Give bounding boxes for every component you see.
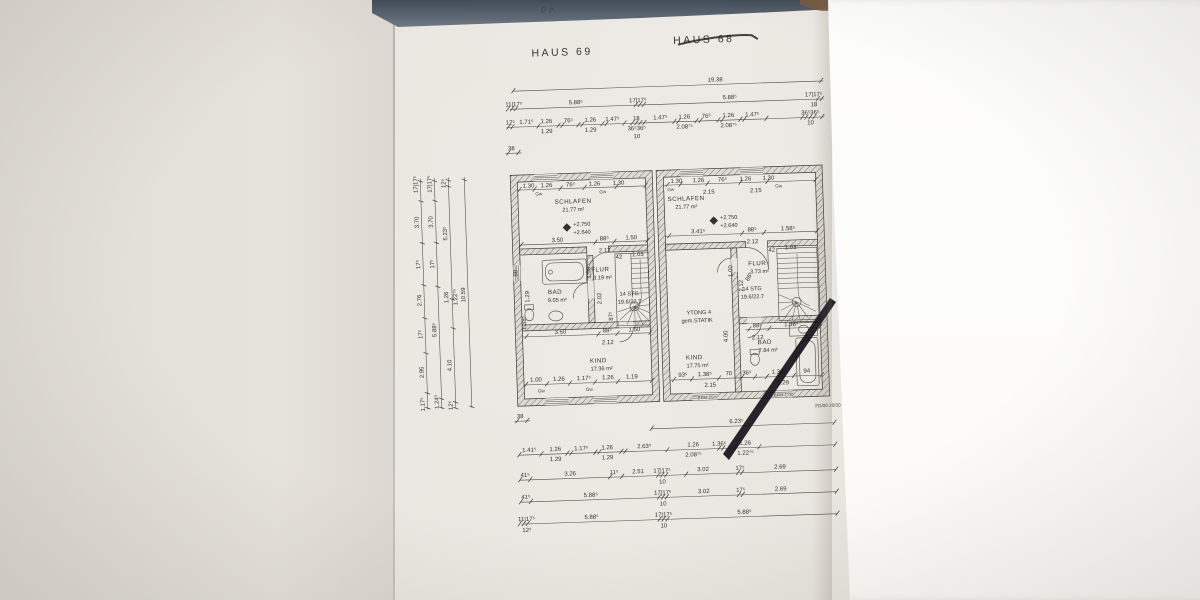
unit-left-stair (615, 253, 650, 326)
note-statik: gem.STATIK (681, 318, 713, 325)
room-name: SCHLAFEN (667, 195, 704, 203)
unit-left-interior: 1.30 1.26 76⁵ 1.26 1.30 Gw Gw SCHLAFEN 2… (510, 179, 654, 394)
dim-label: 36⁵ (742, 369, 752, 376)
room-area: 9.05 m² (548, 298, 567, 305)
window-gw-mark: Gw (599, 189, 607, 194)
dim-label: 2.12 (739, 279, 745, 292)
level-lower: +2.640 (573, 230, 590, 237)
dim-label: 38 (517, 414, 525, 420)
dim-label: 1.38⁵ (784, 321, 799, 328)
dim-label: 1.26 (601, 445, 614, 451)
dim-label: 1.26 (553, 377, 566, 383)
dim-label: 3.70 (428, 215, 434, 228)
dim-label: 87⁵ (608, 311, 615, 321)
dim-label: 3.70 (414, 216, 420, 229)
floorplan-photo: HAUS 69 HAUS 68 19.38 11|17⁵ 5.88⁵ 17|17… (0, 0, 1200, 600)
window-gw-mark: Gw (538, 388, 546, 393)
dim-label: 1.26 (584, 117, 597, 123)
dim-label: 5.88⁵ (723, 94, 738, 101)
room-name: FLUR (748, 260, 766, 268)
dim-label: 1.38⁵ (698, 371, 713, 378)
dim-label: 4.10 (447, 359, 453, 372)
dim-label: 1.30 (671, 179, 684, 185)
dim-label: 1.22⁷⁵ (452, 288, 460, 305)
dim-label: 1.50 (628, 327, 641, 333)
dim-label: 11⁵ (610, 469, 619, 476)
dim-label: 1.30 (523, 184, 536, 190)
dim-label: 10 (660, 523, 668, 529)
dim-label: 93⁵ (678, 372, 688, 379)
note-ytong: YTONG 4 (687, 310, 712, 317)
dim-label: 1.30 (762, 176, 775, 182)
dim-label: 10.59 (461, 287, 468, 303)
dim-label: 2.12 (599, 248, 612, 254)
dim-label: 41⁵ (520, 472, 530, 479)
dim-label: 12⁵ (506, 119, 516, 126)
title-haus-69: HAUS 69 (531, 46, 593, 60)
dim-label: 2.08⁷⁵ (720, 122, 737, 130)
dim-label: 2.95 (419, 366, 425, 379)
dim-label: 17⁵ (417, 329, 424, 339)
dim-label: 70 (725, 371, 733, 377)
dim-label: 11|17⁵ (505, 101, 523, 109)
room-name: KIND (590, 357, 607, 365)
dim-label: 17|17⁵ (653, 467, 671, 475)
dim-label: 1.29 (525, 290, 531, 303)
room-name: BAD (548, 289, 562, 296)
dim-label: 17|17⁵ (412, 175, 420, 193)
dim-label: 3.50 (551, 238, 564, 244)
dim-label: 76⁵ (564, 117, 574, 124)
stair-label: 14 STG (742, 286, 761, 293)
level-mark: +2.750 +2.640 (563, 222, 591, 237)
dim-label: 1.26 (740, 176, 753, 182)
dim-label: 17⁵ (415, 259, 422, 269)
bathtub-drain (548, 270, 552, 274)
dim-label: 2.76 (417, 294, 423, 307)
dim-label: 10 (659, 479, 667, 485)
window-gw-mark: Gw (667, 187, 675, 192)
room-area: 3.19 m² (593, 275, 612, 282)
dim-label: 1.29 (777, 380, 790, 386)
dim-label: 17|17⁵ (655, 511, 673, 519)
dim-label: 3.02 (697, 467, 710, 473)
dim-label: 10 (660, 501, 668, 507)
dim-label: 1.00 (728, 264, 734, 277)
dim-label: 38 (508, 146, 516, 152)
dim-label: 1.47⁵ (745, 111, 760, 118)
dim-label: 12⁵ (448, 400, 455, 410)
dim-label: 2.15 (703, 190, 716, 196)
dim-label: 2.02 (597, 292, 603, 305)
dim-label: 36⁵36⁵ (627, 125, 646, 133)
page-edge-shadow (812, 0, 832, 600)
dim-label: 19.38 (708, 77, 724, 84)
dim-label: 1.29 (585, 127, 598, 133)
room-area: 17.75 m² (686, 363, 708, 370)
dim-label: 2.08⁷⁵ (685, 451, 702, 459)
dim-label: 17|17⁵ (654, 489, 672, 497)
room-area: 21.77 m² (675, 204, 697, 211)
dim-label: 2.69 (775, 486, 788, 492)
left-dimension-chains: 17|17⁵ 3.70 17⁵ 2.76 17⁵ 2.95 1.17⁵ 17|1… (412, 174, 474, 412)
dim-label: 2.15 (704, 383, 717, 389)
dim-label: 1.26 (540, 119, 553, 125)
dim-label: 76⁵ (718, 176, 728, 183)
dim-label: 1.29 (541, 129, 554, 135)
level-upper: +2.750 (573, 222, 590, 229)
dim-label: 1.19 (626, 374, 639, 380)
dim-label: 1.17⁵ (574, 445, 589, 452)
level-lower: +2.640 (720, 223, 737, 230)
top-dimension-chains: 19.38 11|17⁵ 5.88⁵ 17|17⁵ 5.88⁵ 17|17⁵ 1… (503, 74, 825, 156)
level-mark: +2.750 +2.640 (710, 215, 738, 230)
dim-label: 1.22⁷⁵ (737, 449, 754, 457)
dim-label: 1.26 (589, 181, 602, 187)
dim-label: 17⁵ (735, 465, 745, 472)
window-gw-mark: Gw (535, 191, 543, 196)
dim-label: 12⁵ (440, 178, 447, 188)
dim-label: 2.15 (750, 188, 763, 194)
dim-label: 4.00 (723, 330, 729, 343)
dim-label: 1.30 (613, 181, 626, 187)
unit-right-fixtures (749, 322, 819, 387)
dim-label: 3.02 (698, 489, 711, 495)
dim-label: 41⁵ (521, 494, 531, 501)
dim-label: 1.38⁵ (772, 368, 787, 375)
dim-label: 76⁵ (702, 113, 712, 120)
dim-label: 1.26 (678, 114, 691, 120)
dim-label: 17|17⁵ (426, 175, 434, 193)
dim-label: 42 (768, 248, 776, 254)
dim-label: 2.63⁵ (637, 443, 652, 450)
dim-label: 17⁵ (736, 487, 746, 494)
dim-label: 1.26 (444, 291, 450, 304)
dim-label: 1.58⁵ (781, 225, 796, 232)
plan-titles: HAUS 69 HAUS 68 (531, 32, 758, 60)
dim-label: 1.26 (739, 440, 752, 446)
dim-label: 1.47⁵ (605, 116, 620, 123)
room-name: FLUR (591, 266, 609, 274)
dim-label: 1.26 (602, 375, 615, 381)
dim-label: 6.23⁵ (729, 418, 744, 425)
dim-label: 2.12 (602, 340, 615, 346)
dim-label: 1.26 (541, 183, 554, 189)
toilet (524, 305, 534, 321)
dim-label: 76⁵ (566, 181, 576, 188)
dim-label: 11|17⁵ (518, 516, 536, 524)
window-gw-mark: Gw (586, 387, 594, 392)
dim-label: 17⁵ (429, 259, 436, 269)
dim-label: 1.17⁵ (577, 375, 592, 382)
dim-label: 3.50 (554, 330, 567, 336)
room-area: 17.36 m² (591, 366, 613, 373)
note-brh: BRH 1.00 (774, 392, 795, 398)
bottom-dimension-chains: 38 6.23⁵ 1.41⁵ 1.26 1.17⁵ 1.26 2.63⁵ 1.2… (514, 404, 840, 535)
level-upper: +2.750 (720, 215, 737, 222)
dim-label: 1.50 (625, 235, 638, 241)
dim-label: 18 (633, 116, 641, 122)
dim-label: 1.71⁵ (519, 119, 534, 126)
dim-label: 42 (616, 255, 624, 261)
dim-label: 1.17⁵ (419, 397, 426, 412)
dim-label: 2.69 (774, 464, 787, 470)
dim-label: 2.08⁷⁵ (676, 123, 693, 131)
dim-label: 5.88⁵ (584, 514, 599, 521)
dim-label: 88⁵ (747, 226, 757, 233)
dim-label: 94 (803, 368, 811, 374)
dim-label: 5.88⁵ (584, 492, 599, 499)
dim-label: 1.24⁵ (433, 394, 440, 409)
dim-label: 5.23⁵ (442, 226, 449, 241)
dim-label: 3.26 (564, 471, 577, 477)
floorplan-drawing: HAUS 69 HAUS 68 19.38 11|17⁵ 5.88⁵ 17|17… (383, 18, 871, 573)
dim-label: 1.26 (549, 447, 562, 453)
dim-label: 1.47⁵ (653, 114, 668, 121)
dim-label: 1.26 (687, 442, 700, 448)
dim-label: 5.88⁵ (569, 99, 584, 106)
note-brh: BRH 25 (698, 395, 715, 401)
room-name: SCHLAFEN (554, 198, 591, 206)
dim-label: 1.29 (602, 455, 615, 461)
dim-label: 3.41⁵ (691, 228, 706, 235)
dim-label: 1.36⁵ (712, 440, 727, 447)
sink (549, 311, 563, 321)
dim-label: 2.12 (747, 239, 760, 245)
dim-label: 1.41⁵ (522, 447, 537, 454)
dim-label: 17|17⁵ (629, 97, 647, 105)
dim-label: 1.26 (693, 178, 706, 184)
stair-label: 14 STG (619, 291, 638, 298)
stair-label: 19.6/22.7 (741, 294, 765, 301)
dim-label: 10 (634, 134, 642, 140)
dim-label: 88⁵ (603, 327, 613, 334)
dim-label: 5.88⁵ (737, 509, 752, 516)
paper-left-margin (0, 0, 394, 600)
room-area: 7.84 m² (759, 348, 778, 355)
dim-label: 1.26 (722, 113, 735, 119)
stair-label: 19.6/22.7 (618, 299, 642, 306)
dim-label: 12⁵ (522, 527, 532, 534)
window-gw-mark: Gw (775, 183, 783, 188)
dim-label: 1.29 (550, 457, 563, 463)
dim-label: 88 (513, 269, 519, 277)
dim-label: 2.51 (632, 469, 645, 475)
room-name: KIND (686, 354, 703, 362)
dim-label: 1.38⁵ (521, 315, 528, 330)
dim-label: 5.88⁵ (431, 322, 438, 337)
dim-label: 1.00 (530, 377, 543, 383)
room-area: 21.77 m² (562, 207, 584, 214)
dim-label: 88⁵ (600, 235, 610, 242)
